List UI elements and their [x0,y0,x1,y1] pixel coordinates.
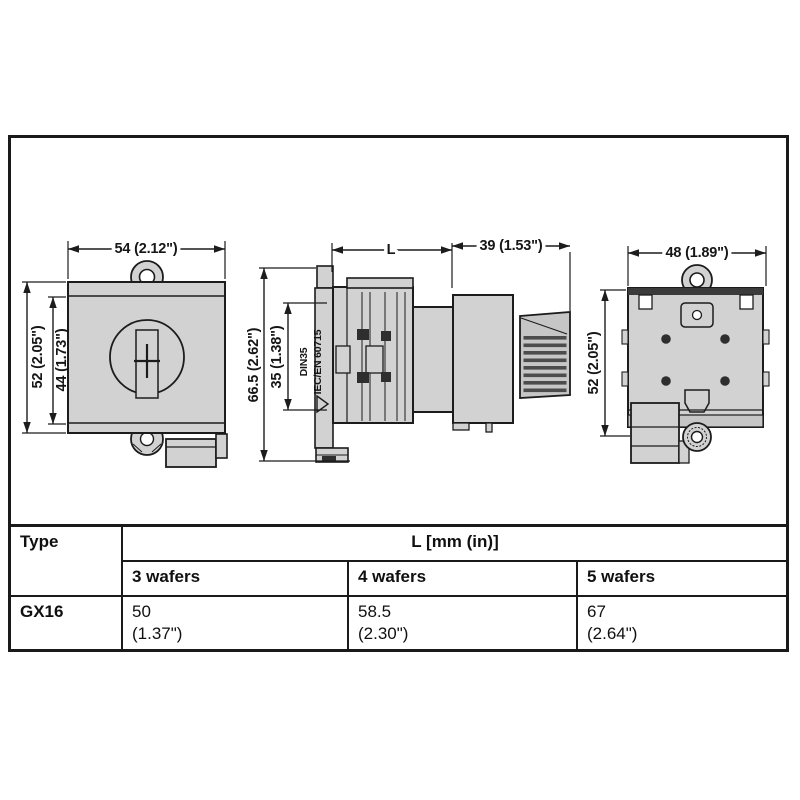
rear-top-strip [628,288,763,295]
din-rail-standard-label: DIN35 [298,347,310,376]
dimension-table-wrap: Type L [mm (in)] 3 wafers 4 wafers 5 waf… [11,524,786,650]
rear-terminal-block [631,403,679,463]
side-neck [413,307,453,412]
value-cell-4-wafers: 58.5 (2.30") [348,596,577,649]
value-mm: 50 [132,601,339,623]
col-header-3-wafers: 3 wafers [122,561,348,596]
side-rail-width-dim-label: 35 (1.38") [269,325,285,388]
figure-frame: 54 (2.12") 52 (2.05") 44 (1.73") [8,135,789,652]
rear-top-ear-hole [690,273,704,287]
col-header-4-wafers: 4 wafers [348,561,577,596]
value-mm: 67 [587,601,778,623]
din-rail-norm-label: IEC/EN 60715 [312,329,324,394]
side-length-dim-label: L [387,242,396,258]
page: { "views": { "front": { "width": "54 (2.… [0,0,800,800]
rear-bottom-ear-hole [692,432,703,443]
table-row: GX16 50 (1.37") 58.5 (2.30") 67 (2.64") [11,596,786,649]
length-header-cell: L [mm (in)] [122,525,786,561]
value-in: (1.37") [132,623,339,645]
front-view: 54 (2.12") 52 (2.05") 44 (1.73") [22,241,227,467]
switch-technical-drawing: 54 (2.12") 52 (2.05") 44 (1.73") [11,138,786,522]
rear-height-dim-label: 52 (2.05") [586,331,602,394]
side-knob [520,312,570,398]
front-height-outer-dim-label: 52 (2.05") [30,325,46,388]
col-header-5-wafers: 5 wafers [577,561,786,596]
side-view: L 39 (1.53") 66.5 (2.62") 35 (1.38") DIN… [246,238,570,462]
side-knob-depth-dim-label: 39 (1.53") [480,238,543,254]
front-bottom-ear-hole [141,433,154,446]
front-terminal-box [166,439,216,467]
value-cell-5-wafers: 67 (2.64") [577,596,786,649]
type-header-cell: Type [11,525,122,596]
rear-width-dim-label: 48 (1.89") [666,245,729,261]
front-width-dim-label: 54 (2.12") [115,241,178,257]
din-bracket-tab [317,266,333,288]
dimension-table: Type L [mm (in)] 3 wafers 4 wafers 5 waf… [11,524,786,650]
rear-bottom-boss [685,390,709,412]
value-in: (2.30") [358,623,568,645]
value-cell-3-wafers: 50 (1.37") [122,596,348,649]
value-mm: 58.5 [358,601,568,623]
front-height-inner-dim-label: 44 (1.73") [54,328,70,391]
side-front-plate [453,295,513,423]
side-height-outer-dim-label: 66.5 (2.62") [246,327,262,402]
type-cell: GX16 [11,596,122,649]
rear-view: 48 (1.89") 52 (2.05") [586,245,769,463]
value-in: (2.64") [587,623,778,645]
